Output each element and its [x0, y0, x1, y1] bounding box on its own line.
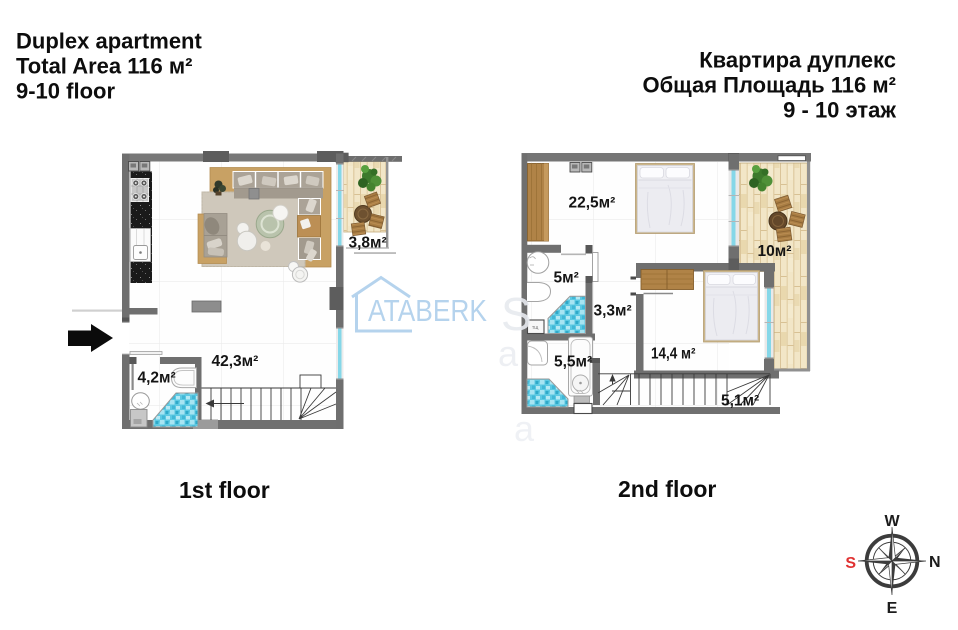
svg-text:3,3м²: 3,3м² — [594, 303, 632, 320]
svg-text:N: N — [929, 554, 941, 571]
svg-text:2nd floor: 2nd floor — [618, 476, 716, 502]
svg-text:3,8м²: 3,8м² — [349, 235, 387, 252]
svg-text:5м²: 5м² — [554, 270, 579, 287]
svg-text:42,3м²: 42,3м² — [212, 353, 259, 370]
svg-text:4,2м²: 4,2м² — [138, 370, 176, 387]
svg-text:9 - 10 этаж: 9 - 10 этаж — [783, 98, 896, 123]
svg-text:а: а — [514, 408, 535, 449]
svg-text:E: E — [887, 600, 898, 617]
svg-text:1st floor: 1st floor — [179, 477, 270, 503]
svg-text:ATABERK: ATABERK — [368, 293, 487, 328]
svg-text:Total Area 116 м²: Total Area 116 м² — [16, 54, 192, 79]
svg-text:5,5м²: 5,5м² — [554, 354, 592, 371]
svg-text:Квартира дуплекс: Квартира дуплекс — [699, 48, 896, 73]
svg-text:Общая Площадь 116 м²: Общая Площадь 116 м² — [642, 73, 896, 98]
svg-text:5,1м²: 5,1м² — [721, 393, 759, 410]
svg-text:22,5м²: 22,5м² — [569, 195, 616, 212]
svg-text:9-10 floor: 9-10 floor — [16, 79, 115, 104]
svg-text:W: W — [884, 513, 900, 530]
svg-text:а: а — [498, 333, 519, 374]
svg-text:10м²: 10м² — [758, 243, 792, 260]
svg-text:тщ: тщ — [532, 325, 538, 331]
svg-text:S: S — [845, 555, 856, 572]
svg-text:14,4 м²: 14,4 м² — [651, 346, 696, 363]
svg-text:Duplex apartment: Duplex apartment — [16, 29, 202, 54]
